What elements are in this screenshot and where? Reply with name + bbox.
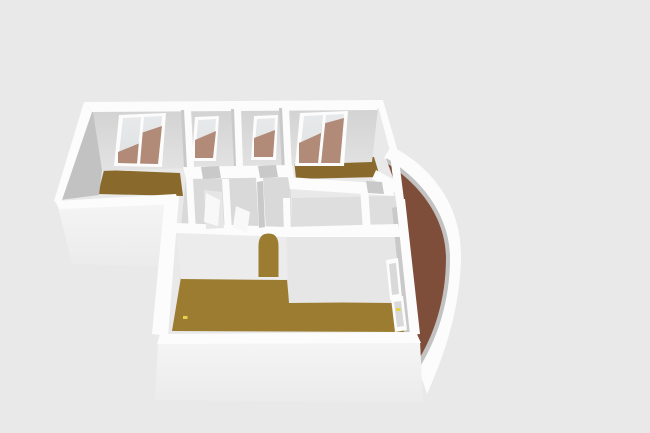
floor-room-top-left: [98, 170, 183, 196]
outlet-living-right: [396, 308, 401, 311]
window-double-room-top-right: [295, 111, 348, 166]
door-opening-balcony: [366, 181, 384, 194]
window-room-small-right: [251, 115, 278, 160]
window-french-room-top-left: [114, 113, 166, 167]
left-wing-front-outer-face: [58, 200, 177, 267]
door-hall-frame: [204, 190, 224, 229]
window-room-small-left: [192, 116, 219, 161]
outlet-living-left: [183, 316, 188, 319]
main-front-outer-face: [155, 341, 423, 403]
wall-top-front: [157, 332, 421, 344]
living-back-wall-face-right: [287, 233, 400, 303]
door-opening-small-room-left: [201, 166, 221, 179]
arched-doorway: [259, 234, 279, 278]
wall-top-midright-west: [283, 198, 291, 237]
door-opening-small-room-right: [258, 165, 278, 178]
floor-plan-3d-view[interactable]: [0, 0, 650, 433]
